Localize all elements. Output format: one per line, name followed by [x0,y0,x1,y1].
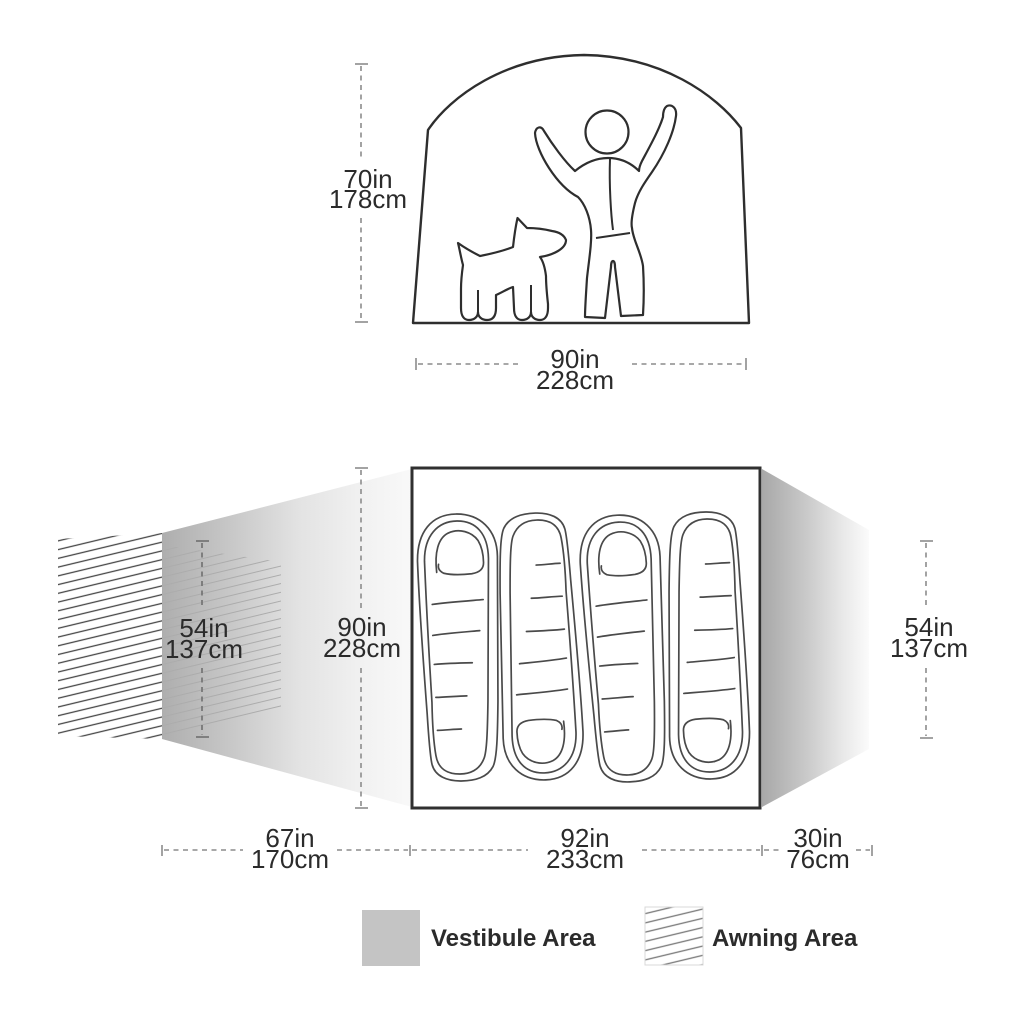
svg-text:228cm: 228cm [323,633,401,663]
svg-text:170cm: 170cm [251,844,329,874]
svg-text:178cm: 178cm [329,184,407,214]
svg-text:76cm: 76cm [786,844,850,874]
svg-text:Vestibule Area: Vestibule Area [431,925,596,952]
svg-text:137cm: 137cm [165,634,243,664]
svg-text:233cm: 233cm [546,844,624,874]
svg-text:Awning Area: Awning Area [712,925,858,952]
svg-text:228cm: 228cm [536,365,614,395]
svg-text:137cm: 137cm [890,633,968,663]
